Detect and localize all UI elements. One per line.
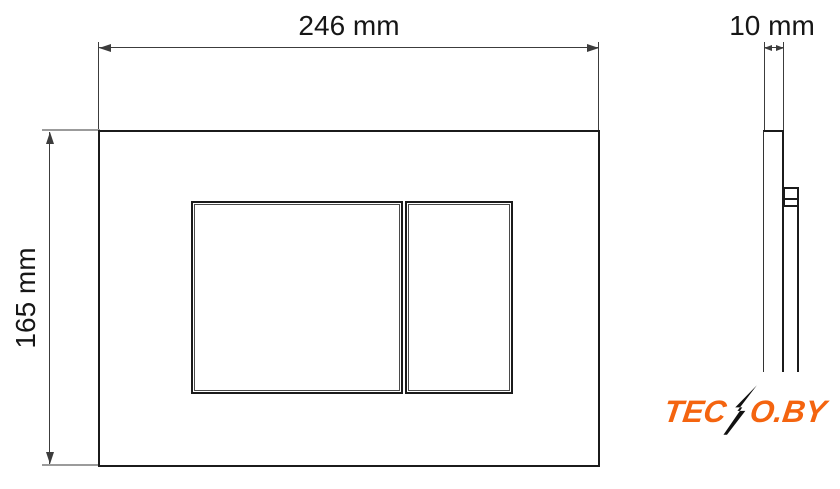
- side-view-plate: [763, 130, 784, 372]
- width-extension-line-right: [598, 42, 599, 130]
- height-dimension-label: 165 mm: [11, 238, 41, 358]
- arrow-left-icon: [99, 44, 111, 52]
- logo-text-suffix: O.BY: [746, 386, 829, 438]
- height-extension-line-bottom: [42, 464, 100, 466]
- arrow-up-icon: [46, 132, 54, 144]
- depth-extension-line-right: [783, 42, 784, 130]
- height-dimension-line: [49, 132, 50, 464]
- side-view-button-tab: [783, 187, 799, 207]
- width-extension-line-left: [98, 42, 99, 130]
- side-view-frame-line: [797, 206, 799, 372]
- height-extension-line-top: [42, 129, 100, 131]
- depth-extension-line-left: [764, 42, 765, 130]
- arrow-down-icon: [46, 452, 54, 464]
- front-view-plate: [98, 130, 600, 467]
- width-dimension-line: [99, 47, 599, 48]
- arrow-right-small-icon: [776, 45, 784, 51]
- side-view-tab-divider-line: [785, 198, 797, 200]
- brand-logo: TEC O.BY: [648, 386, 840, 438]
- arrow-right-icon: [587, 44, 599, 52]
- logo-text-prefix: TEC: [660, 386, 729, 438]
- flush-plate-technical-drawing: 246 mm 165 mm 10 mm TEC O.BY: [0, 0, 840, 489]
- flush-button-small: [405, 201, 513, 394]
- depth-dimension-label: 10 mm: [700, 11, 840, 41]
- flush-button-large: [191, 201, 403, 394]
- width-dimension-label: 246 mm: [249, 11, 449, 41]
- arrow-left-small-icon: [764, 45, 772, 51]
